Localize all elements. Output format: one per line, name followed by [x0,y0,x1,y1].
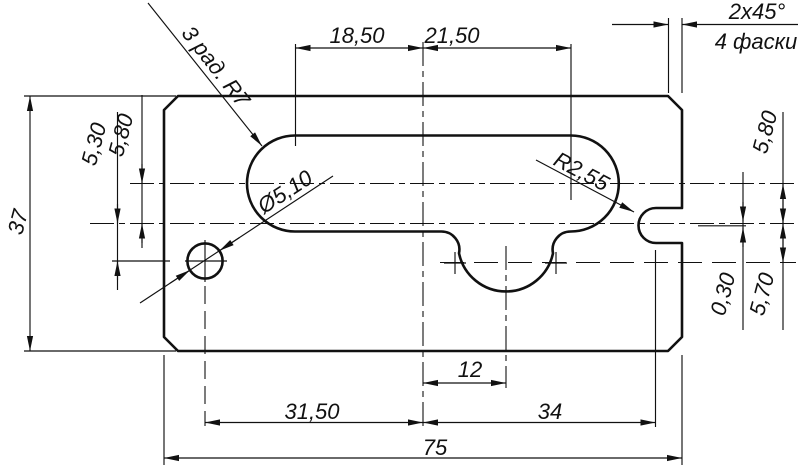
technical-drawing-canvas: 18,50 21,50 2x45° 4 фаски 37 5,30 5,80 5… [0,0,800,473]
dim-text-chamfer-size: 2x45° [728,0,786,24]
leader-hole-arrow-upper [219,238,239,251]
dim-text-34: 34 [538,399,562,424]
dim-text-5-70: 5,70 [744,269,779,318]
fillet-center-mark-right [545,252,567,274]
dim-text-37: 37 [3,206,34,237]
note-text-notch-radius: R2,55 [550,147,614,197]
hole-crosshair [185,240,227,282]
dim-text-chamfer-note: 4 фаски [715,29,798,54]
note-text-hole-diameter: Ø5,10 [252,164,317,219]
leader-hole-arrow-lower [170,270,190,283]
dim-text-21-50: 21,50 [423,23,480,48]
dim-text-0-30: 0,30 [705,269,740,318]
dim-text-5-80-right: 5,80 [747,107,782,156]
note-text-slot-radii: 3 рад. R7 [177,21,256,112]
dim-text-31-50: 31,50 [284,399,340,424]
dim-text-75: 75 [423,435,448,460]
dim-text-5-80-left: 5,80 [103,110,138,159]
dim-text-12: 12 [458,357,482,382]
dim-text-18-50: 18,50 [329,23,385,48]
blade-drawing-svg: 18,50 21,50 2x45° 4 фаски 37 5,30 5,80 5… [0,0,800,473]
